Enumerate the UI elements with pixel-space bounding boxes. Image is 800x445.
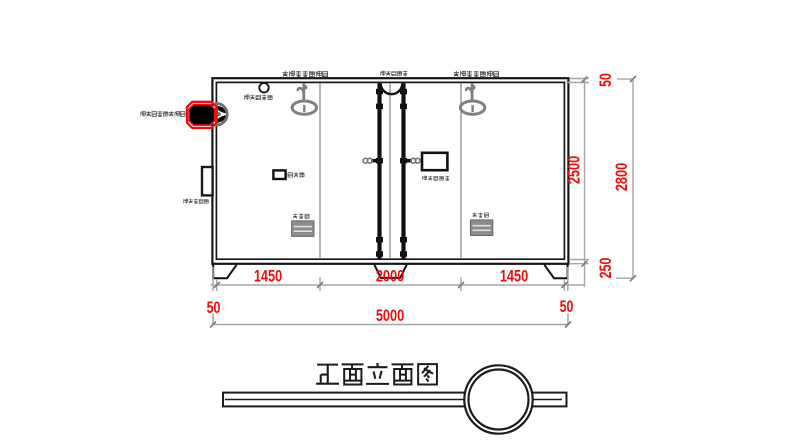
svg-text:250: 250	[597, 258, 615, 279]
svg-text:50: 50	[207, 299, 221, 317]
svg-text:2500: 2500	[565, 156, 584, 184]
svg-text:2800: 2800	[612, 163, 631, 191]
svg-text:1450: 1450	[254, 267, 282, 286]
svg-text:1450: 1450	[500, 267, 528, 286]
svg-text:5000: 5000	[376, 306, 404, 325]
svg-text:50: 50	[560, 298, 574, 316]
svg-text:2000: 2000	[376, 267, 404, 286]
svg-text:50: 50	[597, 73, 615, 87]
